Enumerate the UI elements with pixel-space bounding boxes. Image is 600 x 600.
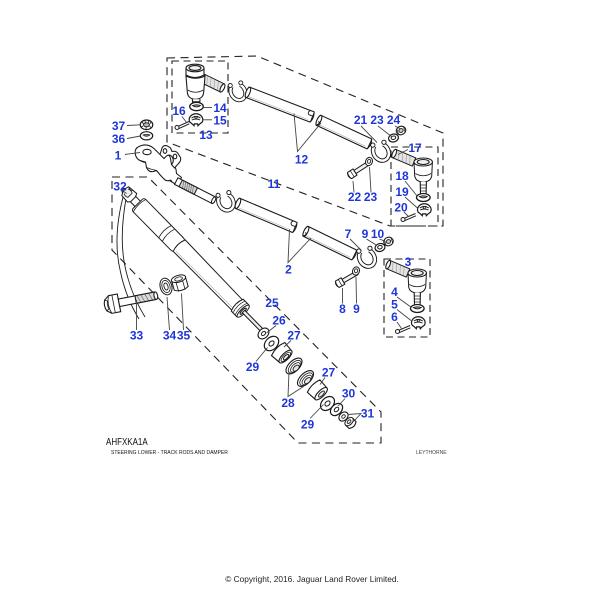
svg-text:LEYTHORNE: LEYTHORNE (416, 450, 447, 456)
svg-text:33: 33 (130, 329, 144, 343)
svg-text:22: 22 (348, 190, 362, 204)
svg-text:10: 10 (371, 227, 385, 241)
svg-text:29: 29 (246, 360, 260, 374)
svg-text:37: 37 (112, 119, 126, 133)
svg-text:3: 3 (405, 255, 412, 269)
svg-text:11: 11 (268, 177, 281, 191)
svg-text:30: 30 (342, 387, 356, 401)
svg-text:STEERING LOWER - TRACK RODS AN: STEERING LOWER - TRACK RODS AND DAMPER (111, 450, 228, 456)
svg-text:26: 26 (272, 314, 286, 328)
svg-text:13: 13 (199, 128, 213, 142)
svg-text:9: 9 (362, 227, 369, 241)
svg-text:1: 1 (115, 149, 122, 163)
svg-text:16: 16 (172, 104, 186, 118)
svg-text:9: 9 (353, 302, 360, 316)
svg-text:2: 2 (285, 263, 292, 277)
svg-text:29: 29 (301, 418, 315, 432)
svg-text:18: 18 (395, 169, 409, 183)
svg-text:24: 24 (387, 113, 401, 127)
svg-text:20: 20 (394, 201, 408, 215)
svg-text:28: 28 (281, 396, 295, 410)
svg-text:25: 25 (265, 296, 279, 310)
svg-text:21: 21 (354, 113, 368, 127)
svg-text:27: 27 (322, 366, 336, 380)
svg-text:12: 12 (295, 153, 309, 167)
svg-text:23: 23 (364, 190, 378, 204)
svg-text:31: 31 (361, 407, 375, 421)
svg-text:32: 32 (113, 180, 127, 194)
svg-text:AHFXKA1A: AHFXKA1A (106, 436, 148, 447)
svg-text:19: 19 (395, 185, 409, 199)
svg-text:34: 34 (163, 329, 177, 343)
svg-text:6: 6 (391, 310, 398, 324)
svg-text:15: 15 (213, 114, 227, 128)
svg-text:7: 7 (345, 227, 352, 241)
svg-text:© Copyright, 2016. Jaguar Land: © Copyright, 2016. Jaguar Land Rover Lim… (225, 574, 399, 584)
svg-text:23: 23 (370, 113, 384, 127)
svg-text:8: 8 (339, 302, 346, 316)
svg-text:17: 17 (408, 141, 422, 155)
svg-text:35: 35 (177, 329, 191, 343)
svg-text:27: 27 (287, 329, 301, 343)
svg-text:36: 36 (112, 132, 126, 146)
